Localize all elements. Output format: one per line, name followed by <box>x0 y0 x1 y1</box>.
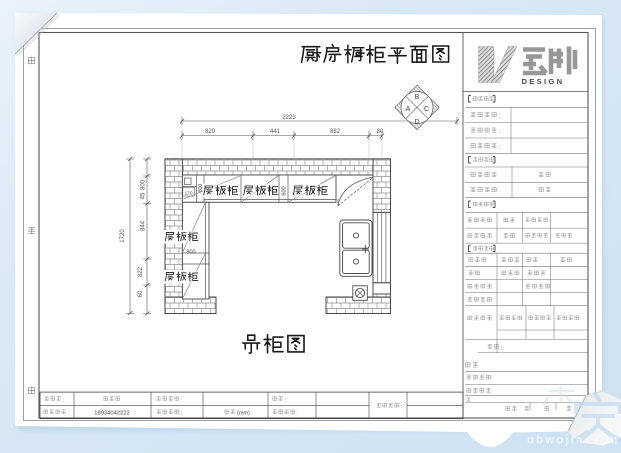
svg-text:800: 800 <box>186 250 195 256</box>
svg-text:45: 45 <box>141 192 147 199</box>
svg-text:844: 844 <box>141 220 147 231</box>
svg-text:D: D <box>414 119 419 126</box>
svg-text:820: 820 <box>205 129 216 135</box>
svg-text:882: 882 <box>330 129 341 135</box>
svg-text:A: A <box>406 106 411 113</box>
svg-text:1720: 1720 <box>120 229 126 243</box>
svg-text:80: 80 <box>377 129 384 135</box>
svg-text:600: 600 <box>282 186 288 195</box>
svg-text:C: C <box>424 106 429 113</box>
svg-text:822: 822 <box>138 266 144 277</box>
svg-text:441: 441 <box>270 129 281 135</box>
svg-text:170: 170 <box>184 190 192 196</box>
svg-text:DESIGN: DESIGN <box>522 77 565 86</box>
svg-text:60: 60 <box>138 290 144 297</box>
svg-text:800: 800 <box>198 184 204 193</box>
svg-text:18934042222: 18934042222 <box>94 410 129 416</box>
svg-text:B: B <box>415 94 420 101</box>
svg-text:800: 800 <box>141 179 147 190</box>
svg-text:(mm): (mm) <box>237 410 250 416</box>
svg-text:ubwojia.com: ubwojia.com <box>527 435 620 447</box>
svg-text:2223: 2223 <box>282 115 296 121</box>
